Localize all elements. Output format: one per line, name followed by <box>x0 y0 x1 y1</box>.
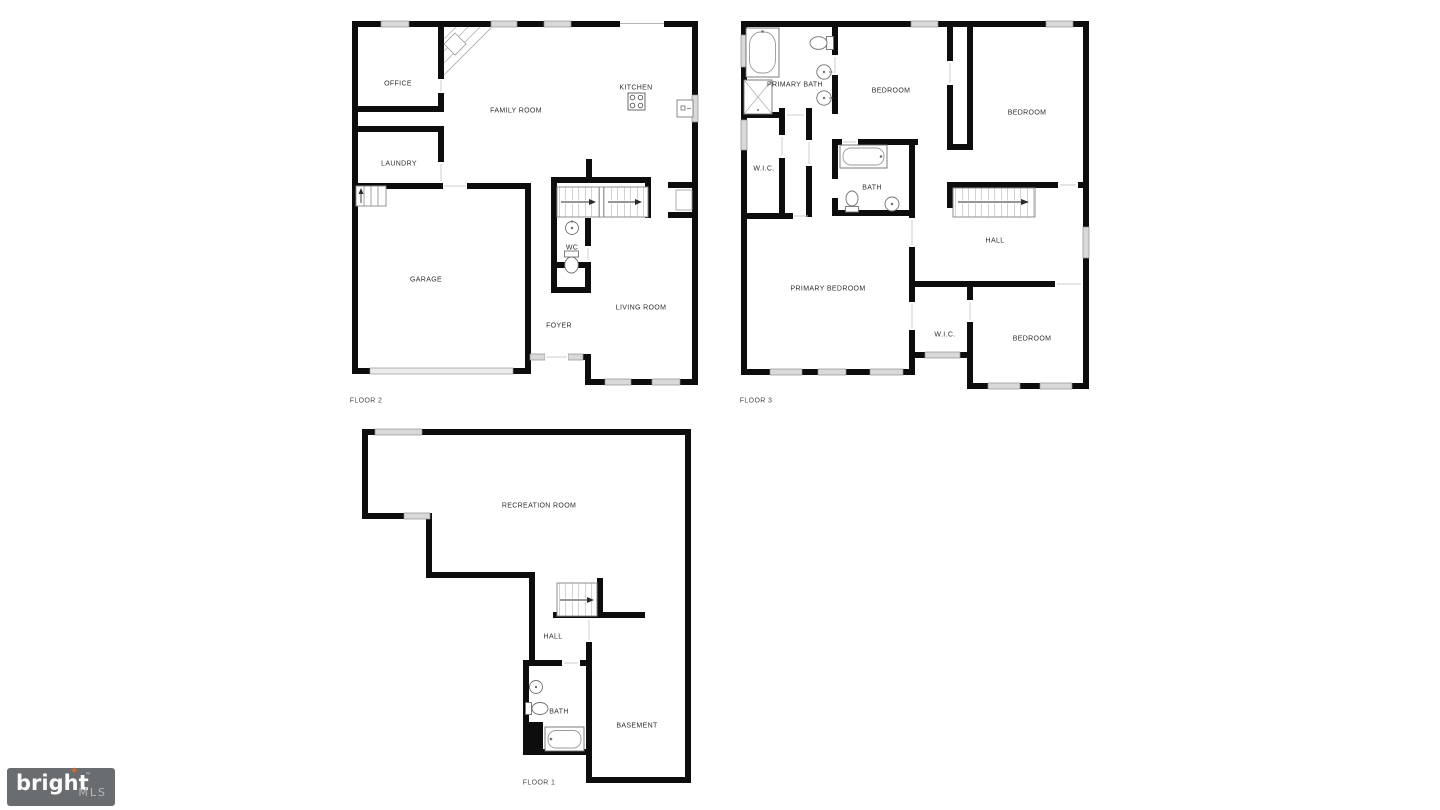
floor1-walls <box>362 429 691 783</box>
stove-icon <box>628 93 645 110</box>
floor3-label: FLOOR 3 <box>740 398 772 405</box>
floor2-label: FLOOR 2 <box>350 398 382 405</box>
room-label-living-room: LIVING ROOM <box>616 305 667 312</box>
wc-toilet-icon <box>565 251 579 273</box>
room-label-garage: GARAGE <box>410 277 442 284</box>
logo-trademark: ™ <box>85 773 91 779</box>
bath-sink-icon <box>885 197 899 211</box>
room-label-family-room: FAMILY ROOM <box>490 108 542 115</box>
floor1-openings <box>375 429 589 663</box>
room-label-hall-f1: HALL <box>544 634 563 641</box>
floor1-label: FLOOR 1 <box>523 780 555 787</box>
room-label-hall: HALL <box>986 238 1005 245</box>
room-label-bath-f1: BATH <box>549 709 569 716</box>
room-label-wc: WC <box>566 245 578 252</box>
primary-bathtub-icon <box>746 28 779 77</box>
primary-toilet-icon <box>810 37 834 50</box>
wc-sink-icon <box>566 220 579 235</box>
room-label-kitchen: KITCHEN <box>619 85 652 92</box>
room-label-primary-bedroom: PRIMARY BEDROOM <box>790 286 865 293</box>
room-label-recreation-room: RECREATION ROOM <box>502 503 576 510</box>
floor2-stairs-icon <box>557 187 648 217</box>
logo-suffix-text: MLS <box>78 787 107 798</box>
room-label-wic-upper: W.I.C. <box>753 166 774 173</box>
floor1-bathtub-icon <box>545 727 584 751</box>
floor3-plan <box>741 21 1089 389</box>
floorplan-canvas: OFFICE FAMILY ROOM KITCHEN LAUNDRY GARAG… <box>0 0 1440 810</box>
brightmls-logo: bright ✦ ™ MLS <box>7 768 115 806</box>
floor2-plan <box>352 21 698 385</box>
garage-door <box>370 368 513 374</box>
bath-toilet-icon <box>846 191 859 212</box>
floor3-walls <box>741 21 1089 389</box>
room-label-bedroom-a: BEDROOM <box>872 88 911 95</box>
logo-star-icon: ✦ <box>70 767 78 777</box>
floor1-plan <box>362 429 691 783</box>
floor1-toilet-icon <box>526 703 549 715</box>
room-label-foyer: FOYER <box>546 323 572 330</box>
corner-stair-hatch-icon <box>444 27 492 75</box>
kitchen-island-icon <box>677 100 693 117</box>
entry-steps-icon <box>356 186 386 206</box>
floor1-stairs-icon <box>557 583 597 616</box>
floorplan-drawing <box>0 0 1440 810</box>
room-label-basement: BASEMENT <box>616 723 657 730</box>
floor3-stairs-icon <box>953 188 1035 217</box>
room-label-bedroom-c: BEDROOM <box>1013 336 1052 343</box>
bath-tub-icon <box>840 145 887 168</box>
room-label-bath: BATH <box>862 185 882 192</box>
floor1-sink-icon <box>530 681 543 694</box>
room-label-primary-bath: PRIMARY BATH <box>767 82 823 89</box>
room-label-laundry: LAUNDRY <box>381 161 417 168</box>
stair-closet <box>676 190 692 210</box>
room-label-bedroom-b: BEDROOM <box>1008 110 1047 117</box>
room-label-office: OFFICE <box>384 81 412 88</box>
room-label-wic-lower: W.I.C. <box>934 332 955 339</box>
